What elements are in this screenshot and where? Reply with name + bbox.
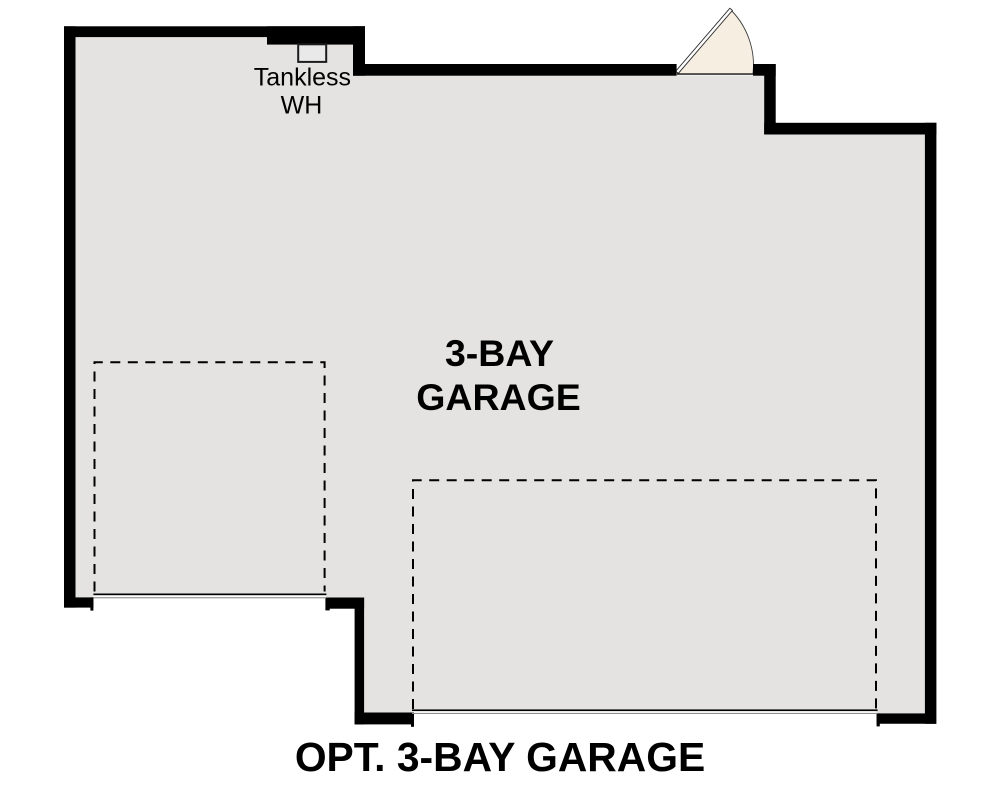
svg-text:GARAGE: GARAGE bbox=[416, 376, 581, 418]
svg-text:OPT. 3-BAY GARAGE: OPT. 3-BAY GARAGE bbox=[295, 734, 705, 780]
svg-text:Tankless: Tankless bbox=[254, 63, 351, 91]
svg-text:WH: WH bbox=[281, 92, 323, 120]
svg-text:3-BAY: 3-BAY bbox=[445, 332, 554, 374]
